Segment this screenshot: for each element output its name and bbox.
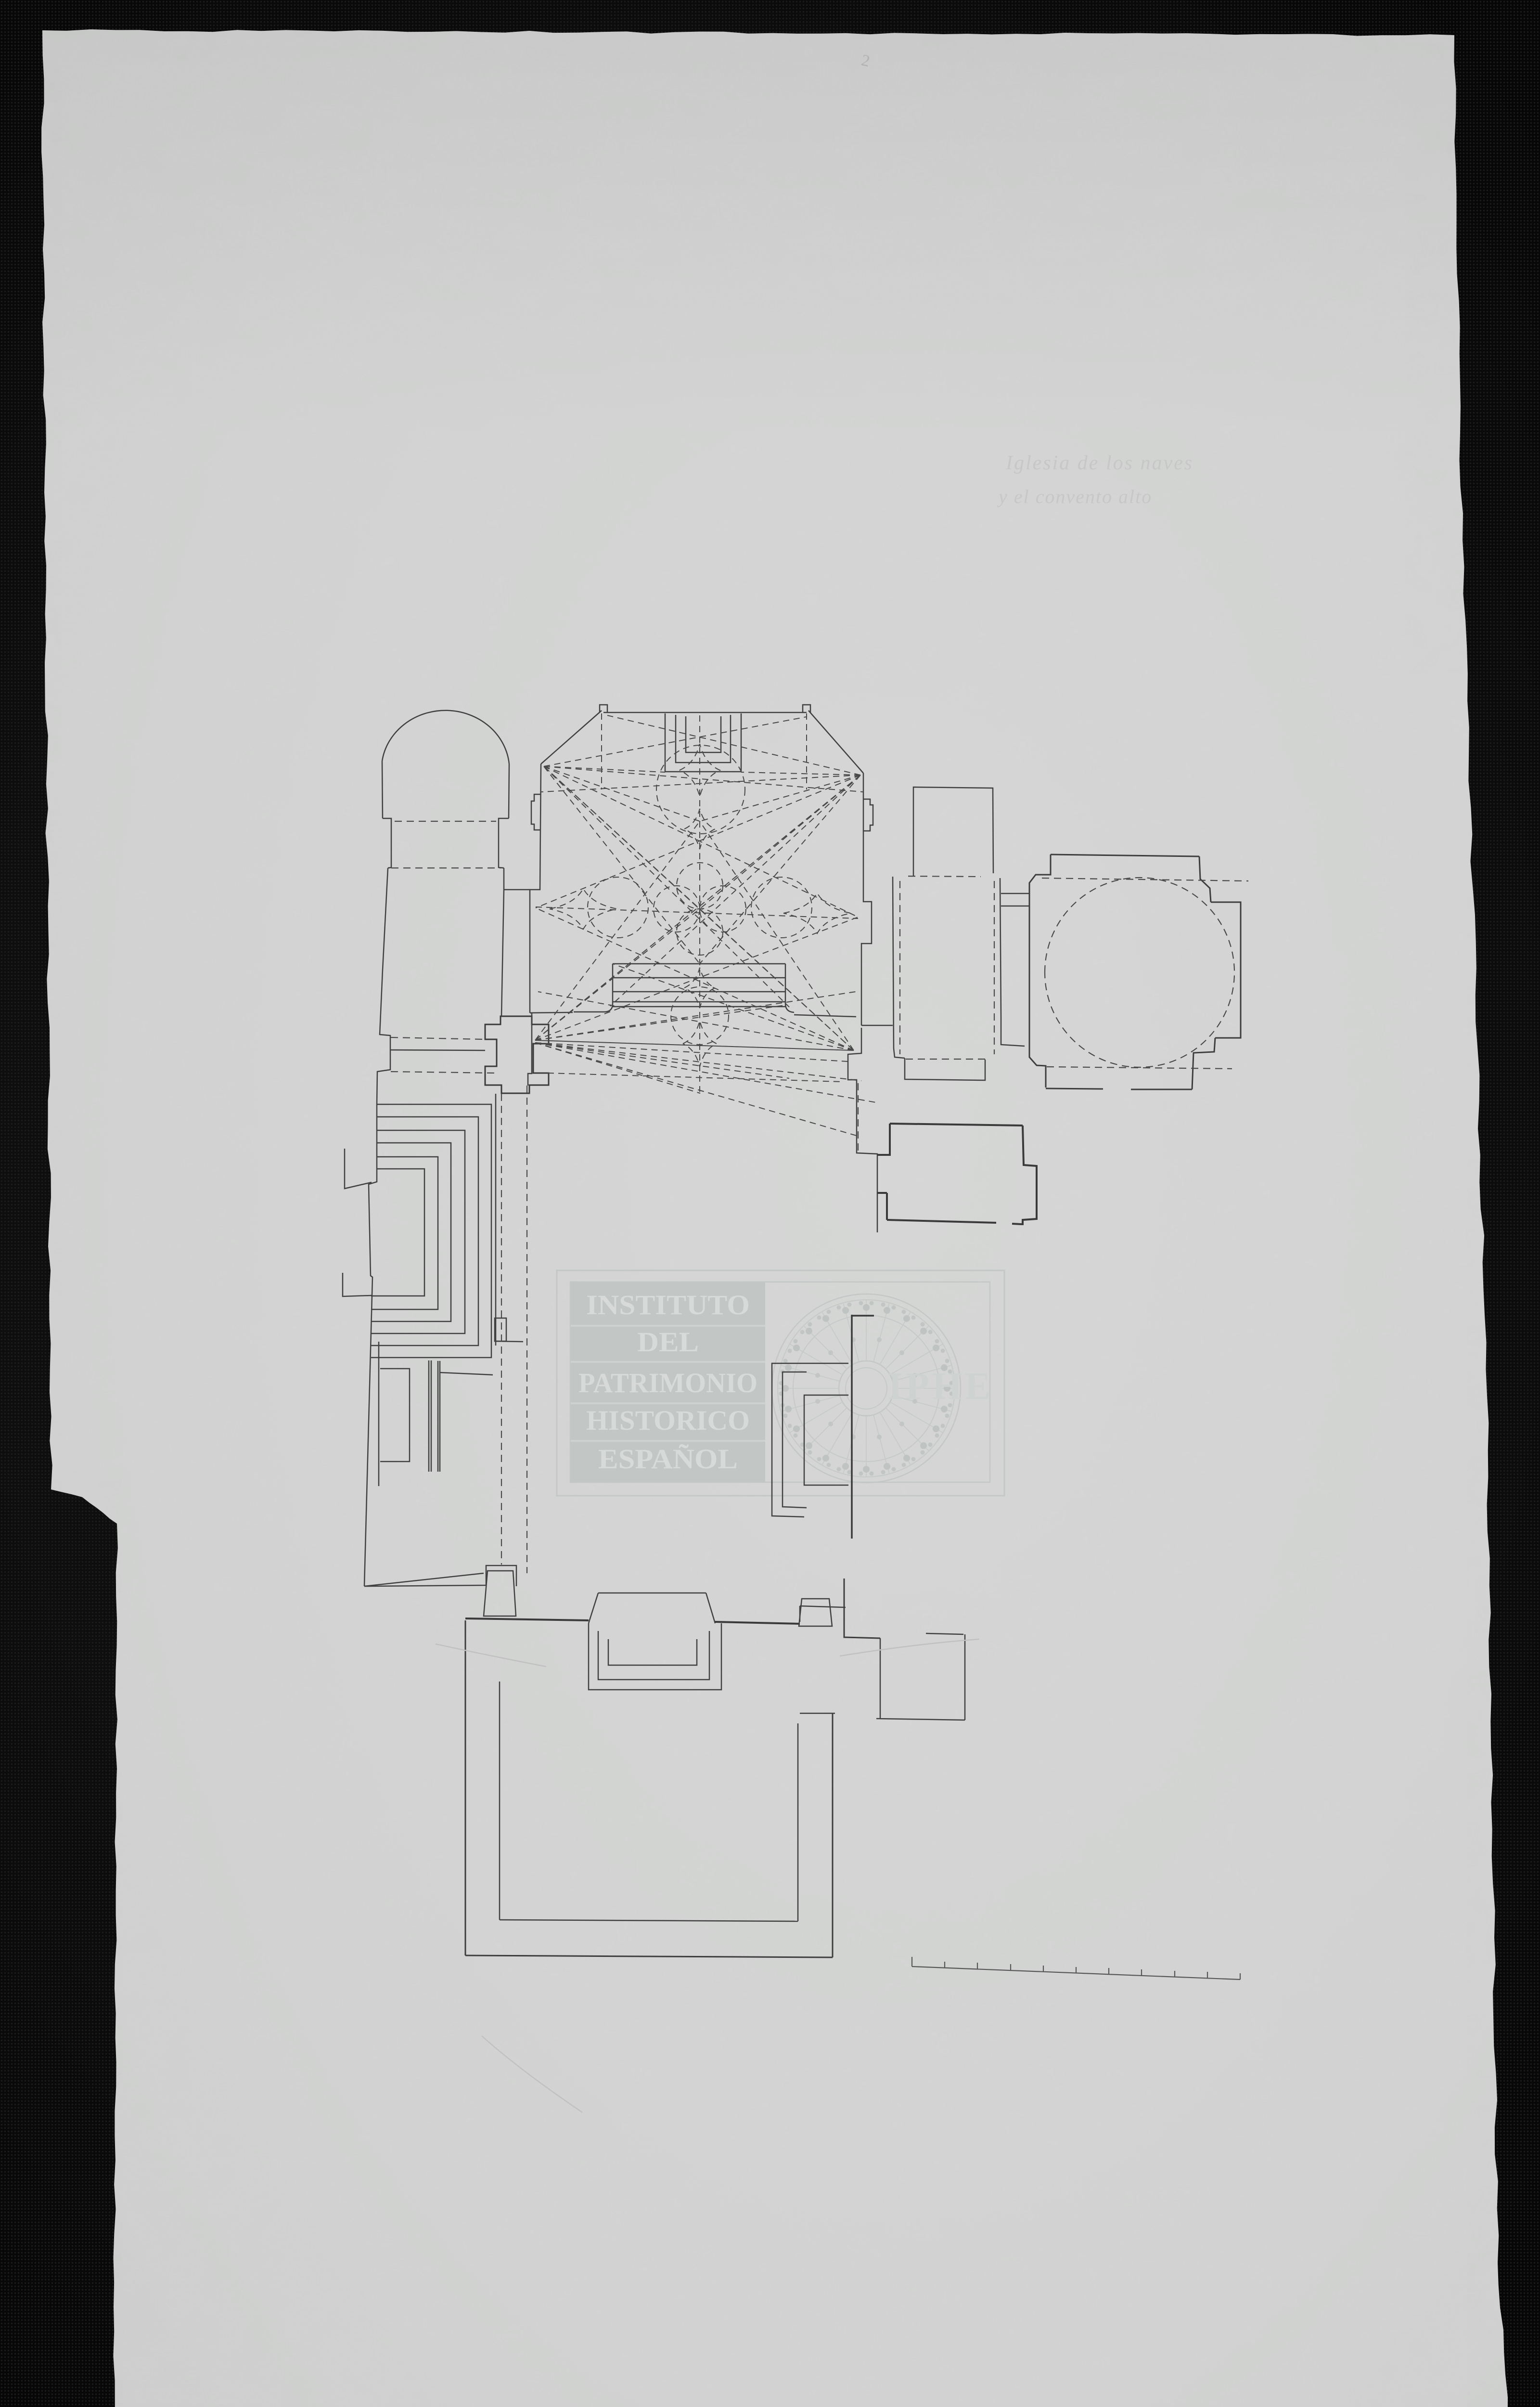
svg-text:DEL: DEL bbox=[637, 1326, 699, 1358]
svg-text:ESPAÑOL: ESPAÑOL bbox=[598, 1443, 738, 1475]
svg-text:y el convento alto: y el convento alto bbox=[997, 486, 1152, 507]
svg-text:PATRIMONIO: PATRIMONIO bbox=[578, 1367, 757, 1398]
svg-text:INSTITUTO: INSTITUTO bbox=[586, 1289, 750, 1320]
svg-text:HISTORICO: HISTORICO bbox=[586, 1405, 750, 1436]
svg-text:IPHE: IPHE bbox=[888, 1365, 994, 1408]
svg-text:Iglesia de los naves: Iglesia de los naves bbox=[1005, 452, 1193, 474]
